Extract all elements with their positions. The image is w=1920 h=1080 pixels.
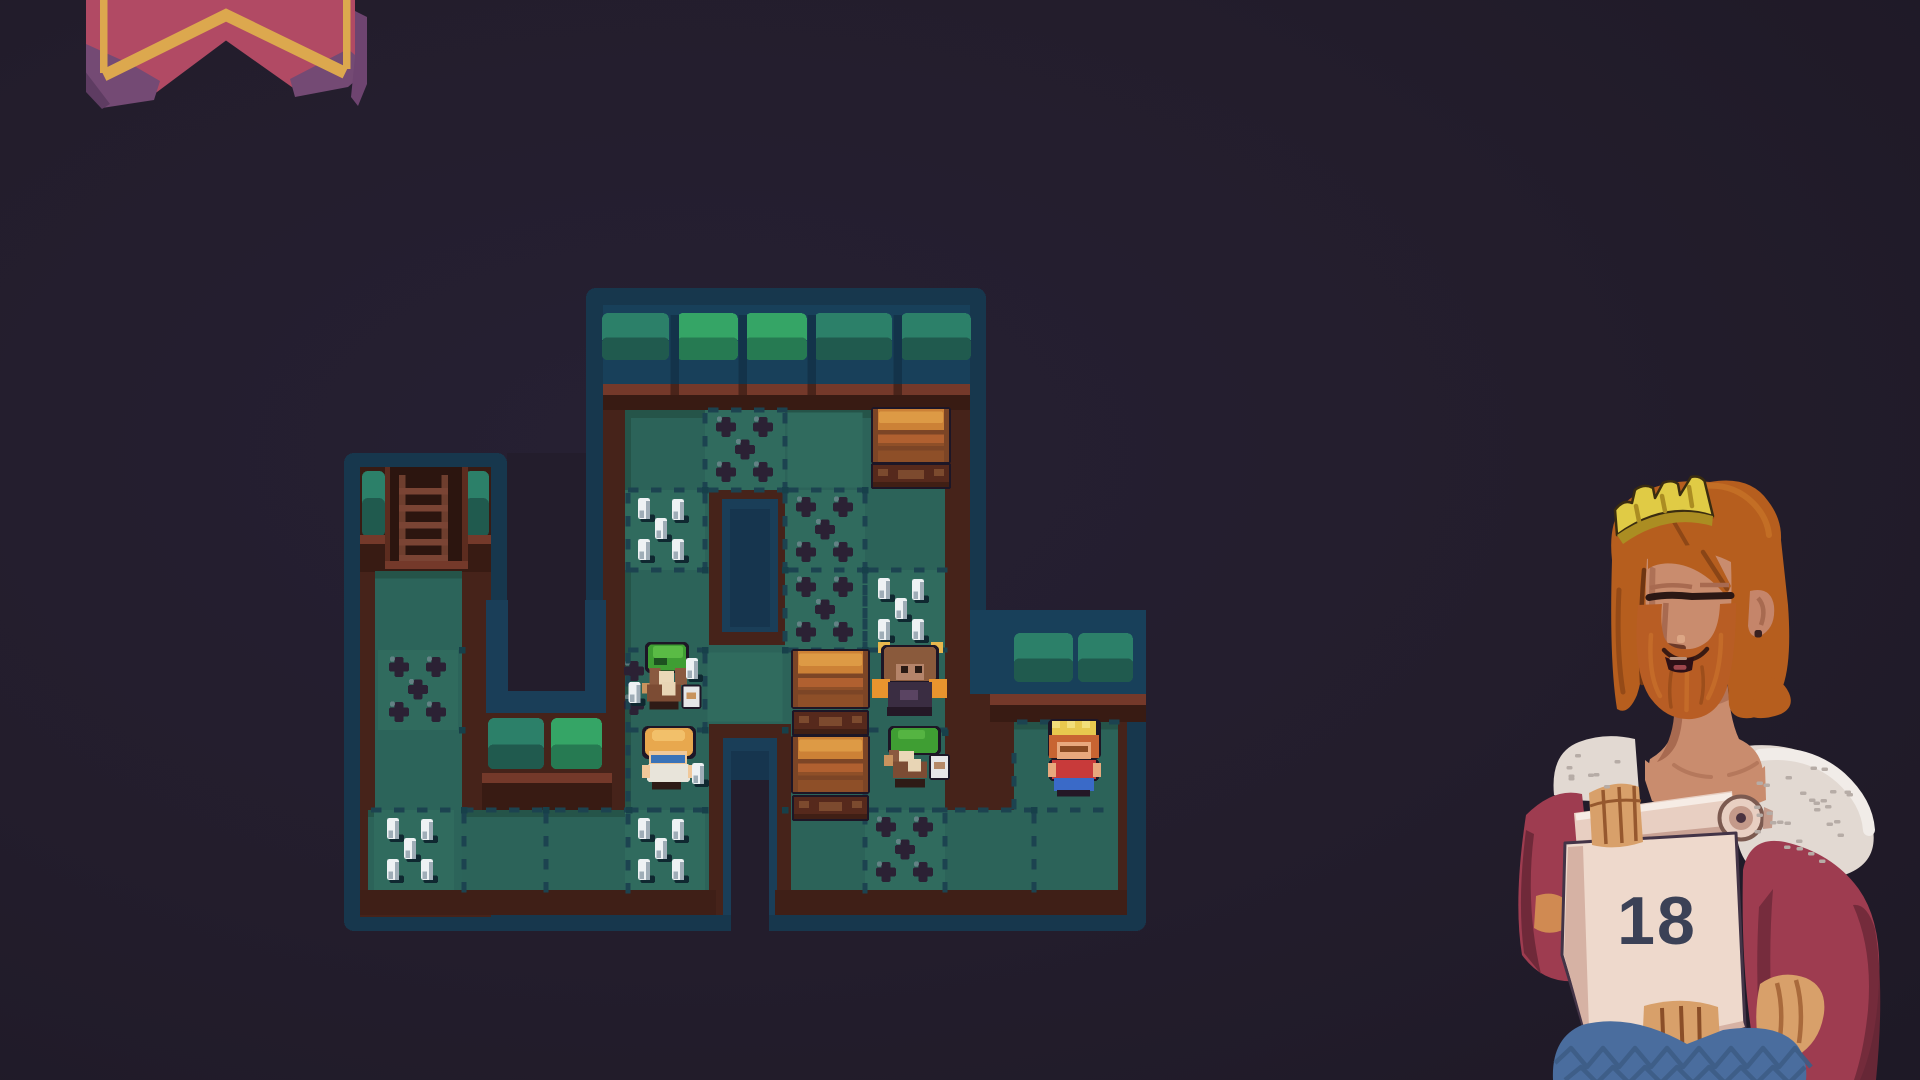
svg-text:18: 18 (1617, 883, 1697, 959)
